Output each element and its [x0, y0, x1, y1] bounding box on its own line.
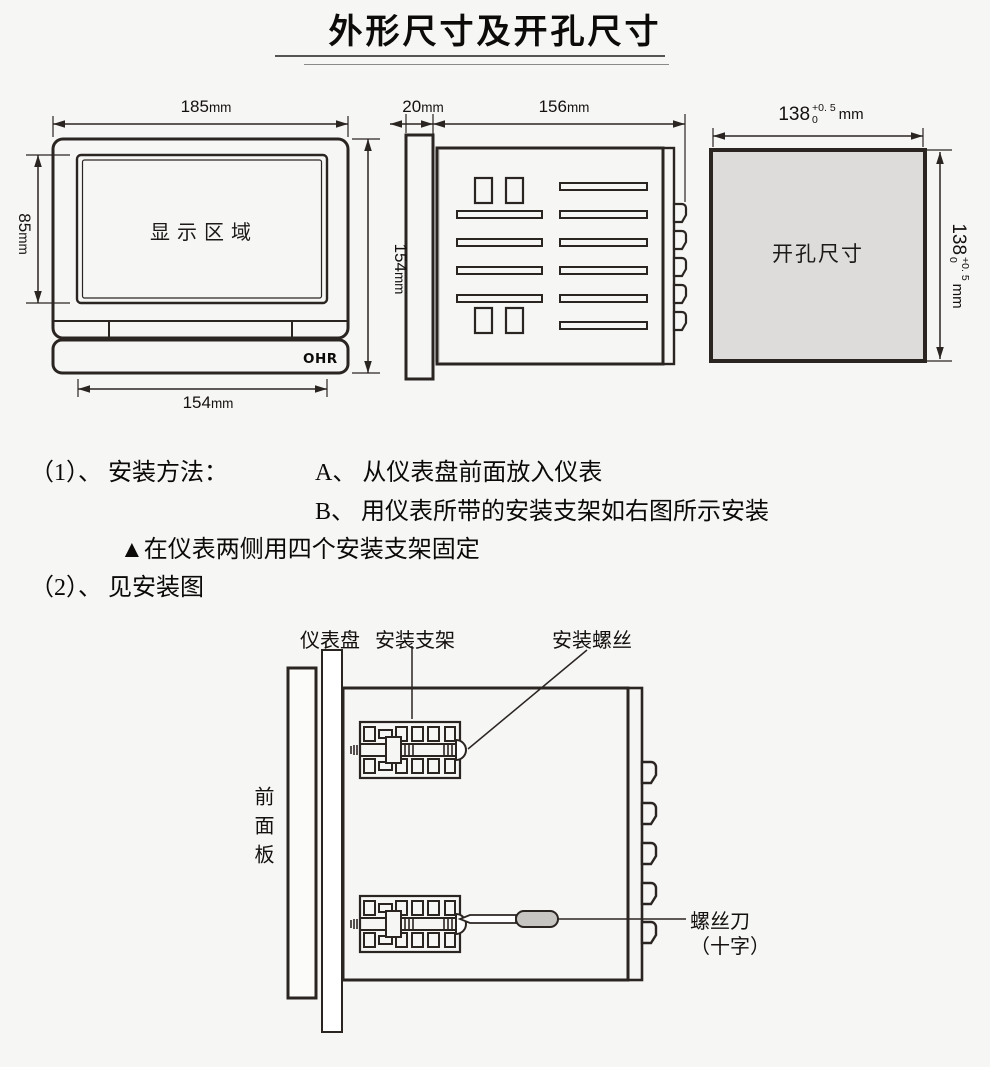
display-area-label: 显示区域: [79, 216, 329, 245]
label-front-panel: 前面板: [248, 786, 277, 873]
instruction-1b: B、 用仪表所带的安装支架如右图所示安装: [315, 491, 769, 526]
front-panel: [288, 668, 316, 998]
screwdriver-handle: [516, 911, 558, 927]
label-screwdriver-type: （十字）: [690, 930, 770, 959]
dim-bezel-depth: 20mm: [383, 97, 463, 117]
front-view-drawing: [53, 139, 348, 373]
body-rear-strip: [628, 688, 642, 980]
dim-body-depth: 156mm: [484, 97, 644, 117]
dim-cutout-height: 138 +0. 50 mm: [944, 206, 972, 326]
screw-leader-line: [468, 650, 587, 749]
brand-logo: OHR: [303, 351, 338, 367]
side-rear-strip: [663, 148, 674, 364]
side-view-drawing: [406, 135, 686, 379]
instruction-note: ▲在仪表两侧用四个安装支架固定: [120, 529, 480, 564]
instruction-1a: A、 从仪表盘前面放入仪表: [315, 452, 602, 487]
cutout-label: 开孔尺寸: [715, 238, 921, 268]
body-terminals: [642, 762, 656, 943]
side-vent-holes: [457, 178, 647, 333]
label-panel: 仪表盘: [300, 624, 360, 653]
side-body: [437, 148, 663, 364]
label-screw: 安装螺丝: [552, 624, 632, 653]
screwdriver: [460, 911, 558, 927]
manual-page: 外形尺寸及开孔尺寸: [0, 0, 990, 1067]
dim-height-right: 154mm: [390, 234, 410, 304]
label-bracket: 安装支架: [375, 624, 455, 653]
side-bezel: [406, 135, 433, 379]
mounting-bracket-top: [351, 722, 466, 778]
instruction-1-label: （1）、 安装方法：: [30, 452, 228, 487]
mounting-bracket-bottom: [351, 896, 466, 952]
install-figure: [288, 646, 686, 1032]
dim-width-bottom: 154mm: [128, 393, 288, 413]
dim-screen-height: 85mm: [14, 199, 34, 269]
side-terminals: [674, 204, 686, 330]
dim-width-top: 185mm: [126, 97, 286, 117]
instruction-2-label: （2）、 见安装图: [30, 567, 204, 602]
screwdriver-shaft: [460, 915, 516, 923]
dim-cutout-width: 138 +0. 50 mm: [733, 103, 909, 126]
dim-height-right-lines: [352, 139, 380, 373]
dim-width-top-lines: [53, 116, 348, 137]
